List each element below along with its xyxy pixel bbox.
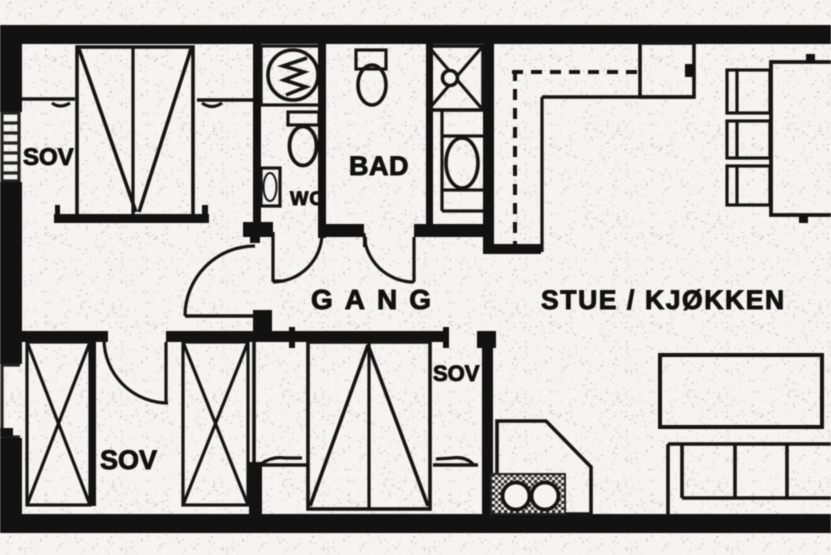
svg-text:SOV: SOV: [23, 144, 74, 171]
svg-text:SOV: SOV: [433, 361, 480, 386]
svg-text:SOV: SOV: [100, 445, 157, 475]
svg-text:WC: WC: [290, 188, 325, 210]
svg-text:GANG: GANG: [311, 284, 443, 315]
svg-text:BAD: BAD: [349, 151, 409, 181]
svg-text:STUE / KJØKKEN: STUE / KJØKKEN: [541, 285, 786, 315]
